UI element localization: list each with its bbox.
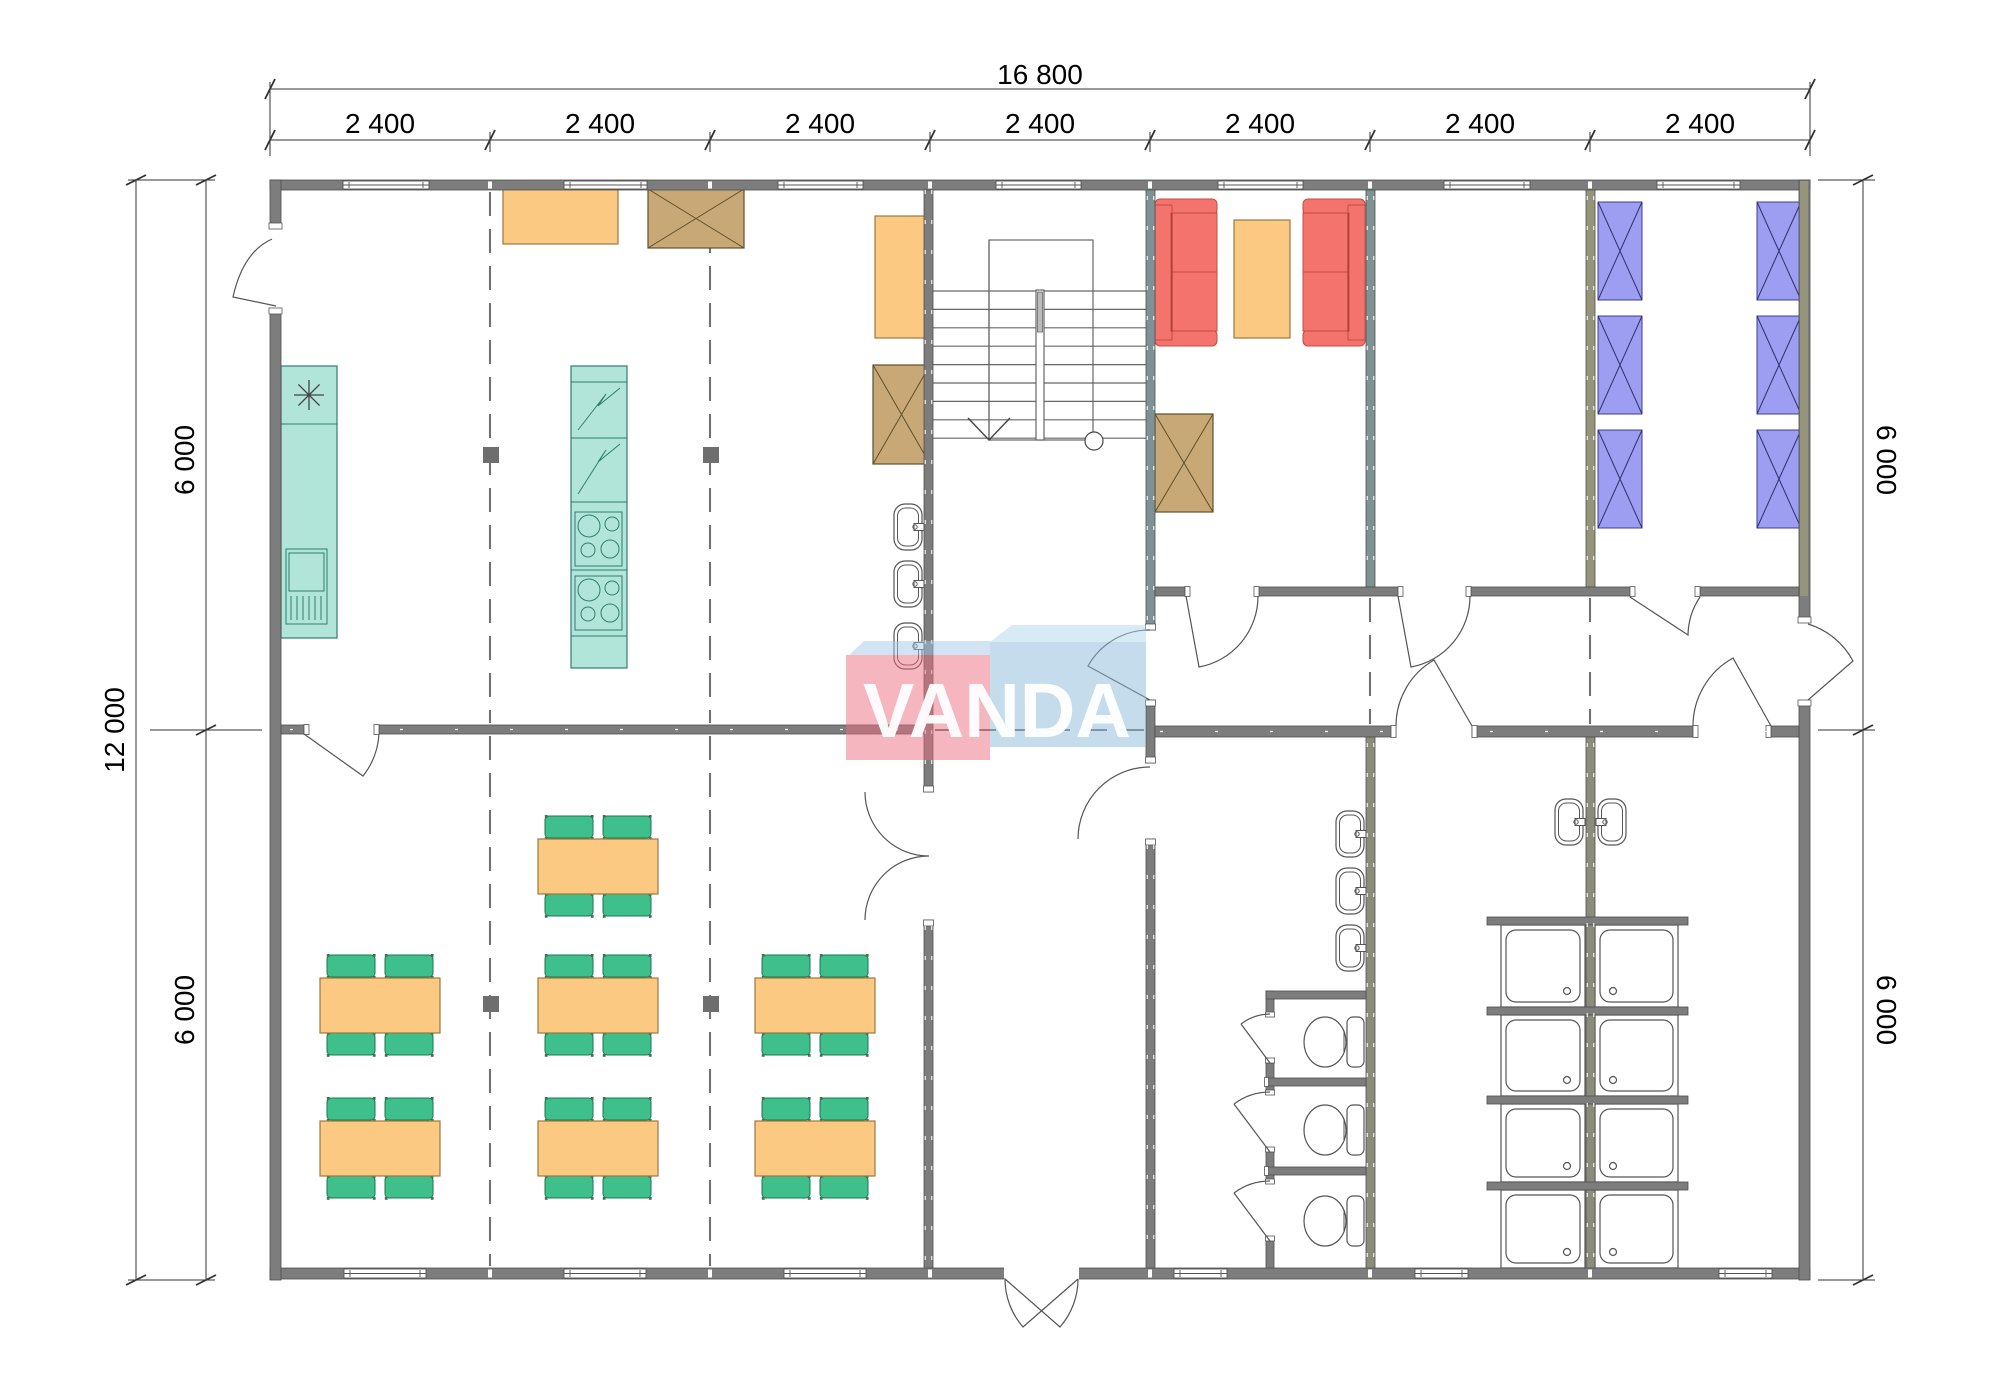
svg-text:16 800: 16 800 — [997, 59, 1083, 90]
svg-text:2 400: 2 400 — [1665, 108, 1735, 139]
svg-text:2 400: 2 400 — [1005, 108, 1075, 139]
svg-text:2 400: 2 400 — [565, 108, 635, 139]
svg-text:6 000: 6 000 — [1871, 425, 1902, 495]
svg-text:2 400: 2 400 — [1445, 108, 1515, 139]
svg-text:2 400: 2 400 — [345, 108, 415, 139]
svg-text:12 000: 12 000 — [99, 687, 130, 773]
svg-text:6 000: 6 000 — [1871, 975, 1902, 1045]
svg-text:2 400: 2 400 — [1225, 108, 1295, 139]
svg-text:VANDA: VANDA — [863, 668, 1131, 754]
svg-text:6 000: 6 000 — [169, 425, 200, 495]
svg-text:6 000: 6 000 — [169, 975, 200, 1045]
svg-text:2 400: 2 400 — [785, 108, 855, 139]
